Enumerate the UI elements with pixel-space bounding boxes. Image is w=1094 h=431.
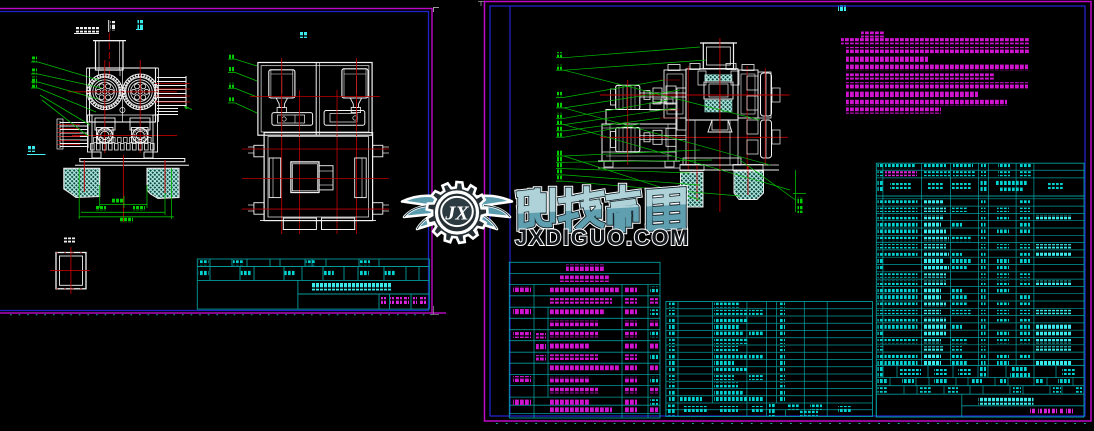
svg-text:JX: JX [444, 203, 469, 225]
svg-text:JXDIGUO.COM: JXDIGUO.COM [515, 225, 689, 250]
